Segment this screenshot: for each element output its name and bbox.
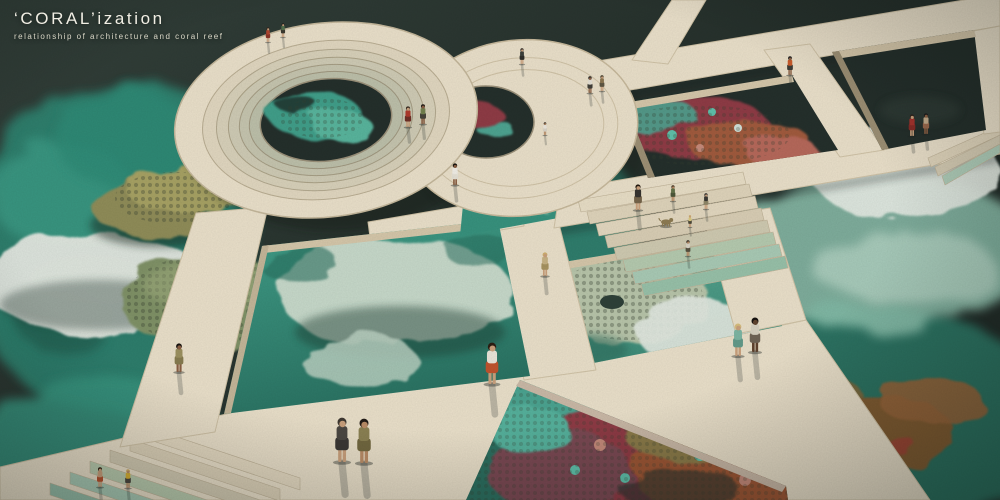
vignette bbox=[0, 0, 1000, 500]
scene-canvas bbox=[0, 0, 1000, 500]
architectural-render: ‘CORAL’ization relationship of architect… bbox=[0, 0, 1000, 500]
